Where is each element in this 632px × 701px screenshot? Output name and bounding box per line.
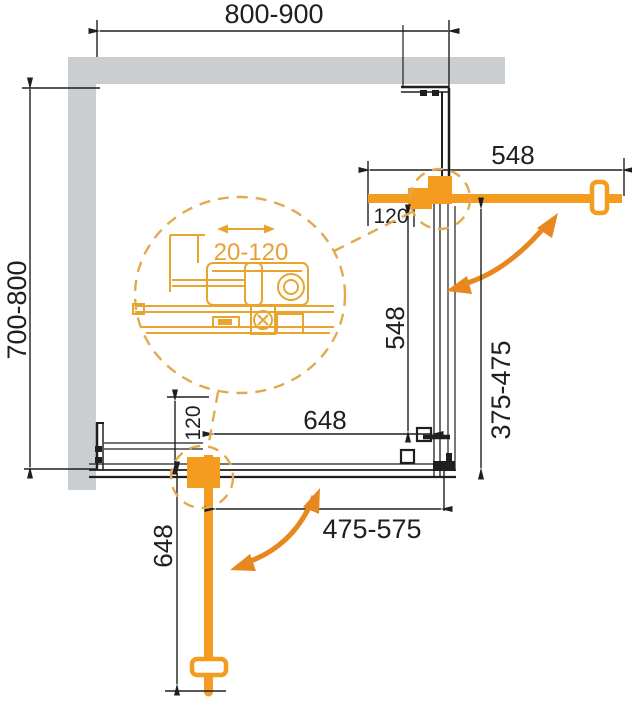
dim-panel-bottom-width: 648: [214, 405, 432, 435]
dim-panel-right-height: 548: [380, 216, 410, 431]
adjust-arrow-right: [264, 225, 275, 234]
door-top-glass: [368, 194, 622, 203]
dim-panel-bottom-width-label: 648: [303, 405, 346, 435]
dim-door-top-length-label: 548: [491, 140, 534, 170]
dim-door-bottom-offset: 120: [167, 397, 209, 463]
detail-block: [277, 314, 303, 333]
detail-leader-bottom: [208, 392, 218, 448]
detail-mechanism: 20-120: [133, 225, 334, 335]
adjust-arrow-left: [217, 225, 228, 234]
door-top-handle: [592, 182, 607, 213]
door-top-pivot: [428, 176, 452, 204]
dim-opening-bottom: 475-575: [216, 470, 444, 544]
swing-arrow-top: [446, 213, 558, 294]
detail-pivot-pin: [278, 274, 304, 300]
installation-diagram: 800-900 700-800: [0, 0, 632, 701]
dim-panel-right-height-label: 548: [380, 306, 410, 349]
door-bottom: [187, 455, 226, 697]
wall-top: [68, 57, 505, 84]
dim-door-bottom-offset-label: 120: [182, 405, 205, 440]
detail-circle: [135, 197, 345, 393]
dim-opening-right: 375-475: [481, 209, 516, 468]
door-bottom-pivot: [187, 457, 220, 488]
dim-detail-adjustment-label: 20-120: [214, 239, 289, 266]
wall-left: [68, 57, 96, 490]
frame-bottom: [89, 423, 456, 477]
dim-opening-right-label: 375-475: [486, 340, 516, 439]
diagram-canvas: 800-900 700-800: [0, 0, 632, 701]
dim-left-depth-label: 700-800: [2, 260, 32, 359]
wall-profile-bottom-left: [95, 423, 104, 470]
detail-callout: [135, 169, 470, 508]
dim-door-bottom-length-label: 648: [148, 524, 178, 567]
detail-profile-body: [207, 263, 308, 305]
door-bottom-handle: [192, 659, 226, 675]
dim-top-width-label: 800-900: [224, 0, 323, 29]
swing-arrow-top-head-left: [446, 276, 472, 294]
swing-arrow-bottom-head-bottom: [230, 554, 256, 571]
swing-arrow-bottom: [230, 488, 320, 571]
dim-opening-bottom-label: 475-575: [322, 514, 421, 544]
